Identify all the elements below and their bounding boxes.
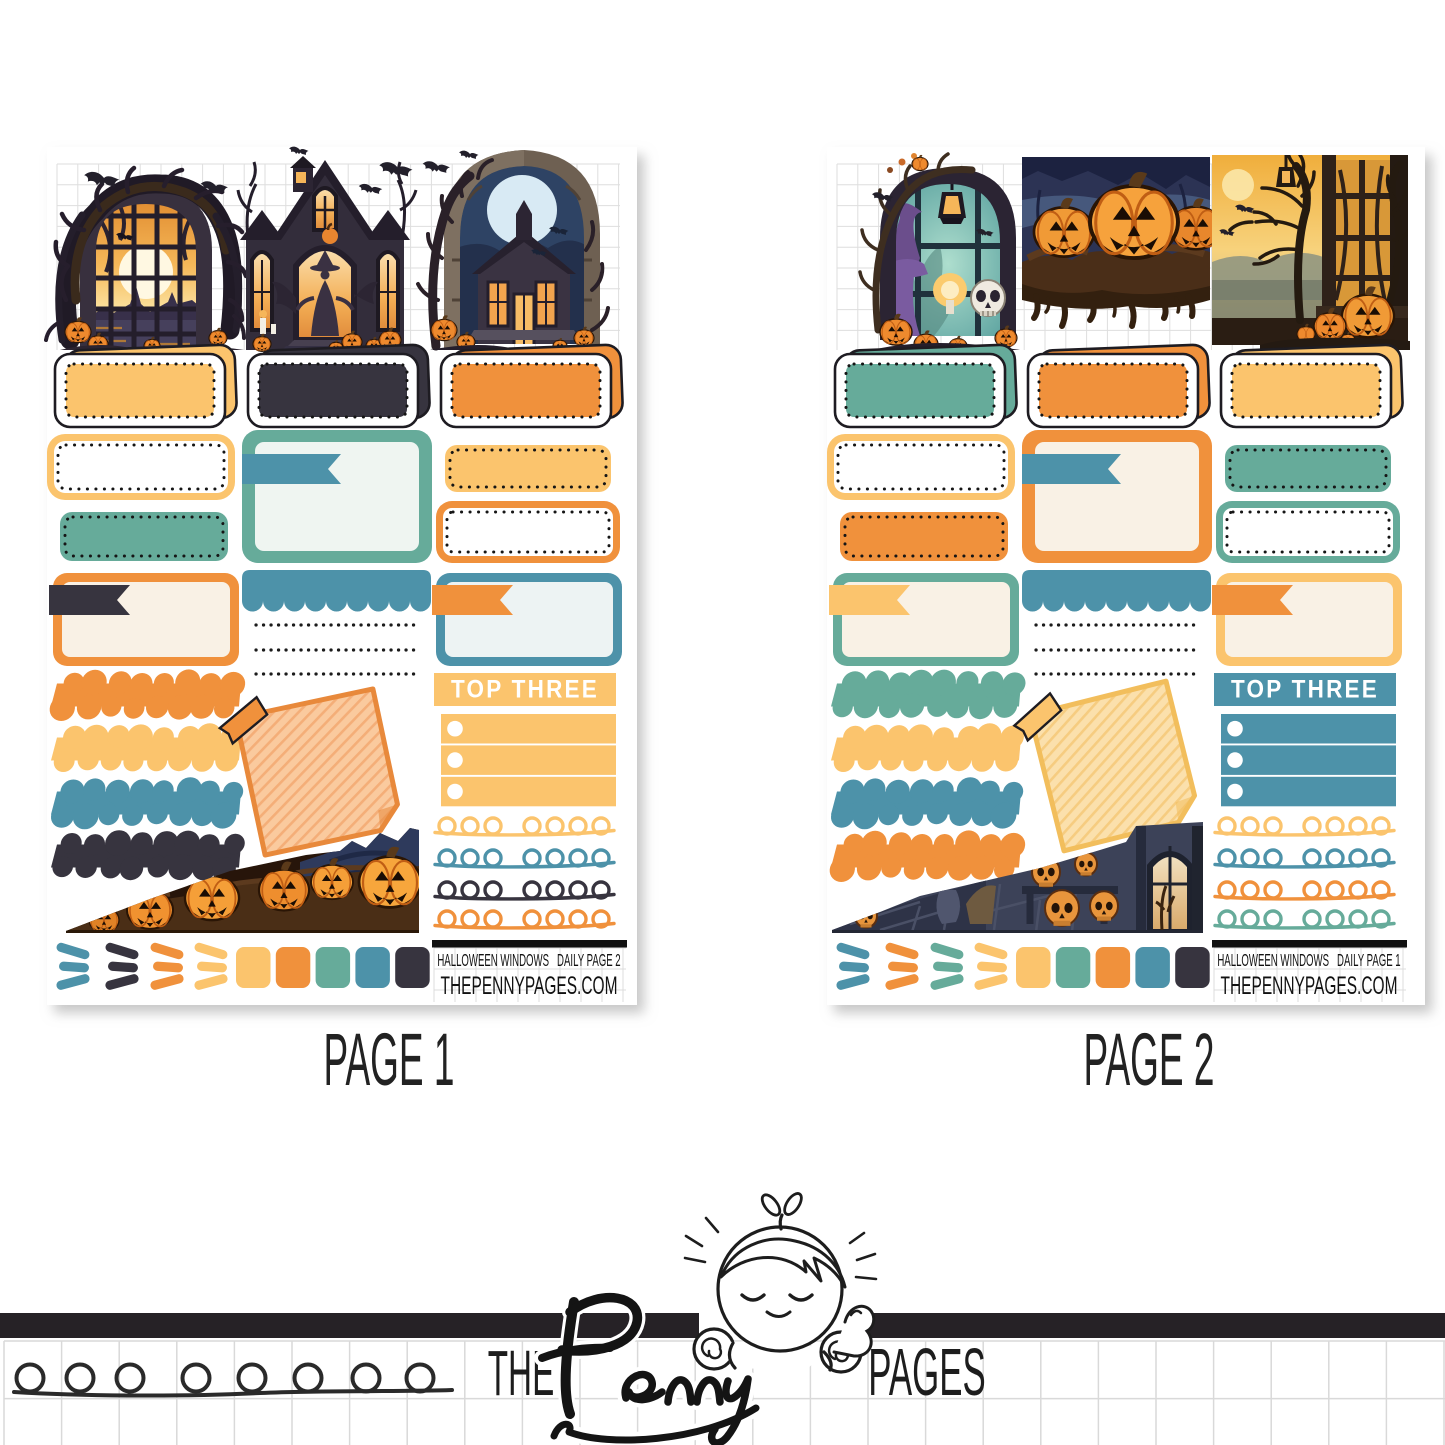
svg-text:TOP THREE: TOP THREE <box>451 675 599 703</box>
svg-text:PAGE 1: PAGE 1 <box>324 1019 455 1101</box>
svg-text:THEPENNYPAGES.COM: THEPENNYPAGES.COM <box>441 972 618 1000</box>
svg-text:TOP THREE: TOP THREE <box>1231 675 1379 703</box>
svg-text:PAGE 2: PAGE 2 <box>1084 1019 1215 1101</box>
svg-text:THEPENNYPAGES.COM: THEPENNYPAGES.COM <box>1221 972 1398 1000</box>
svg-text:PAGES: PAGES <box>868 1336 985 1410</box>
svg-text:HALLOWEEN WINDOWS DAILY PAGE: HALLOWEEN WINDOWS DAILY PAGE 2 <box>437 950 620 970</box>
svg-text:HALLOWEEN WINDOWS DAILY PAGE: HALLOWEEN WINDOWS DAILY PAGE 1 <box>1217 950 1400 970</box>
svg-text:THE: THE <box>488 1337 555 1409</box>
